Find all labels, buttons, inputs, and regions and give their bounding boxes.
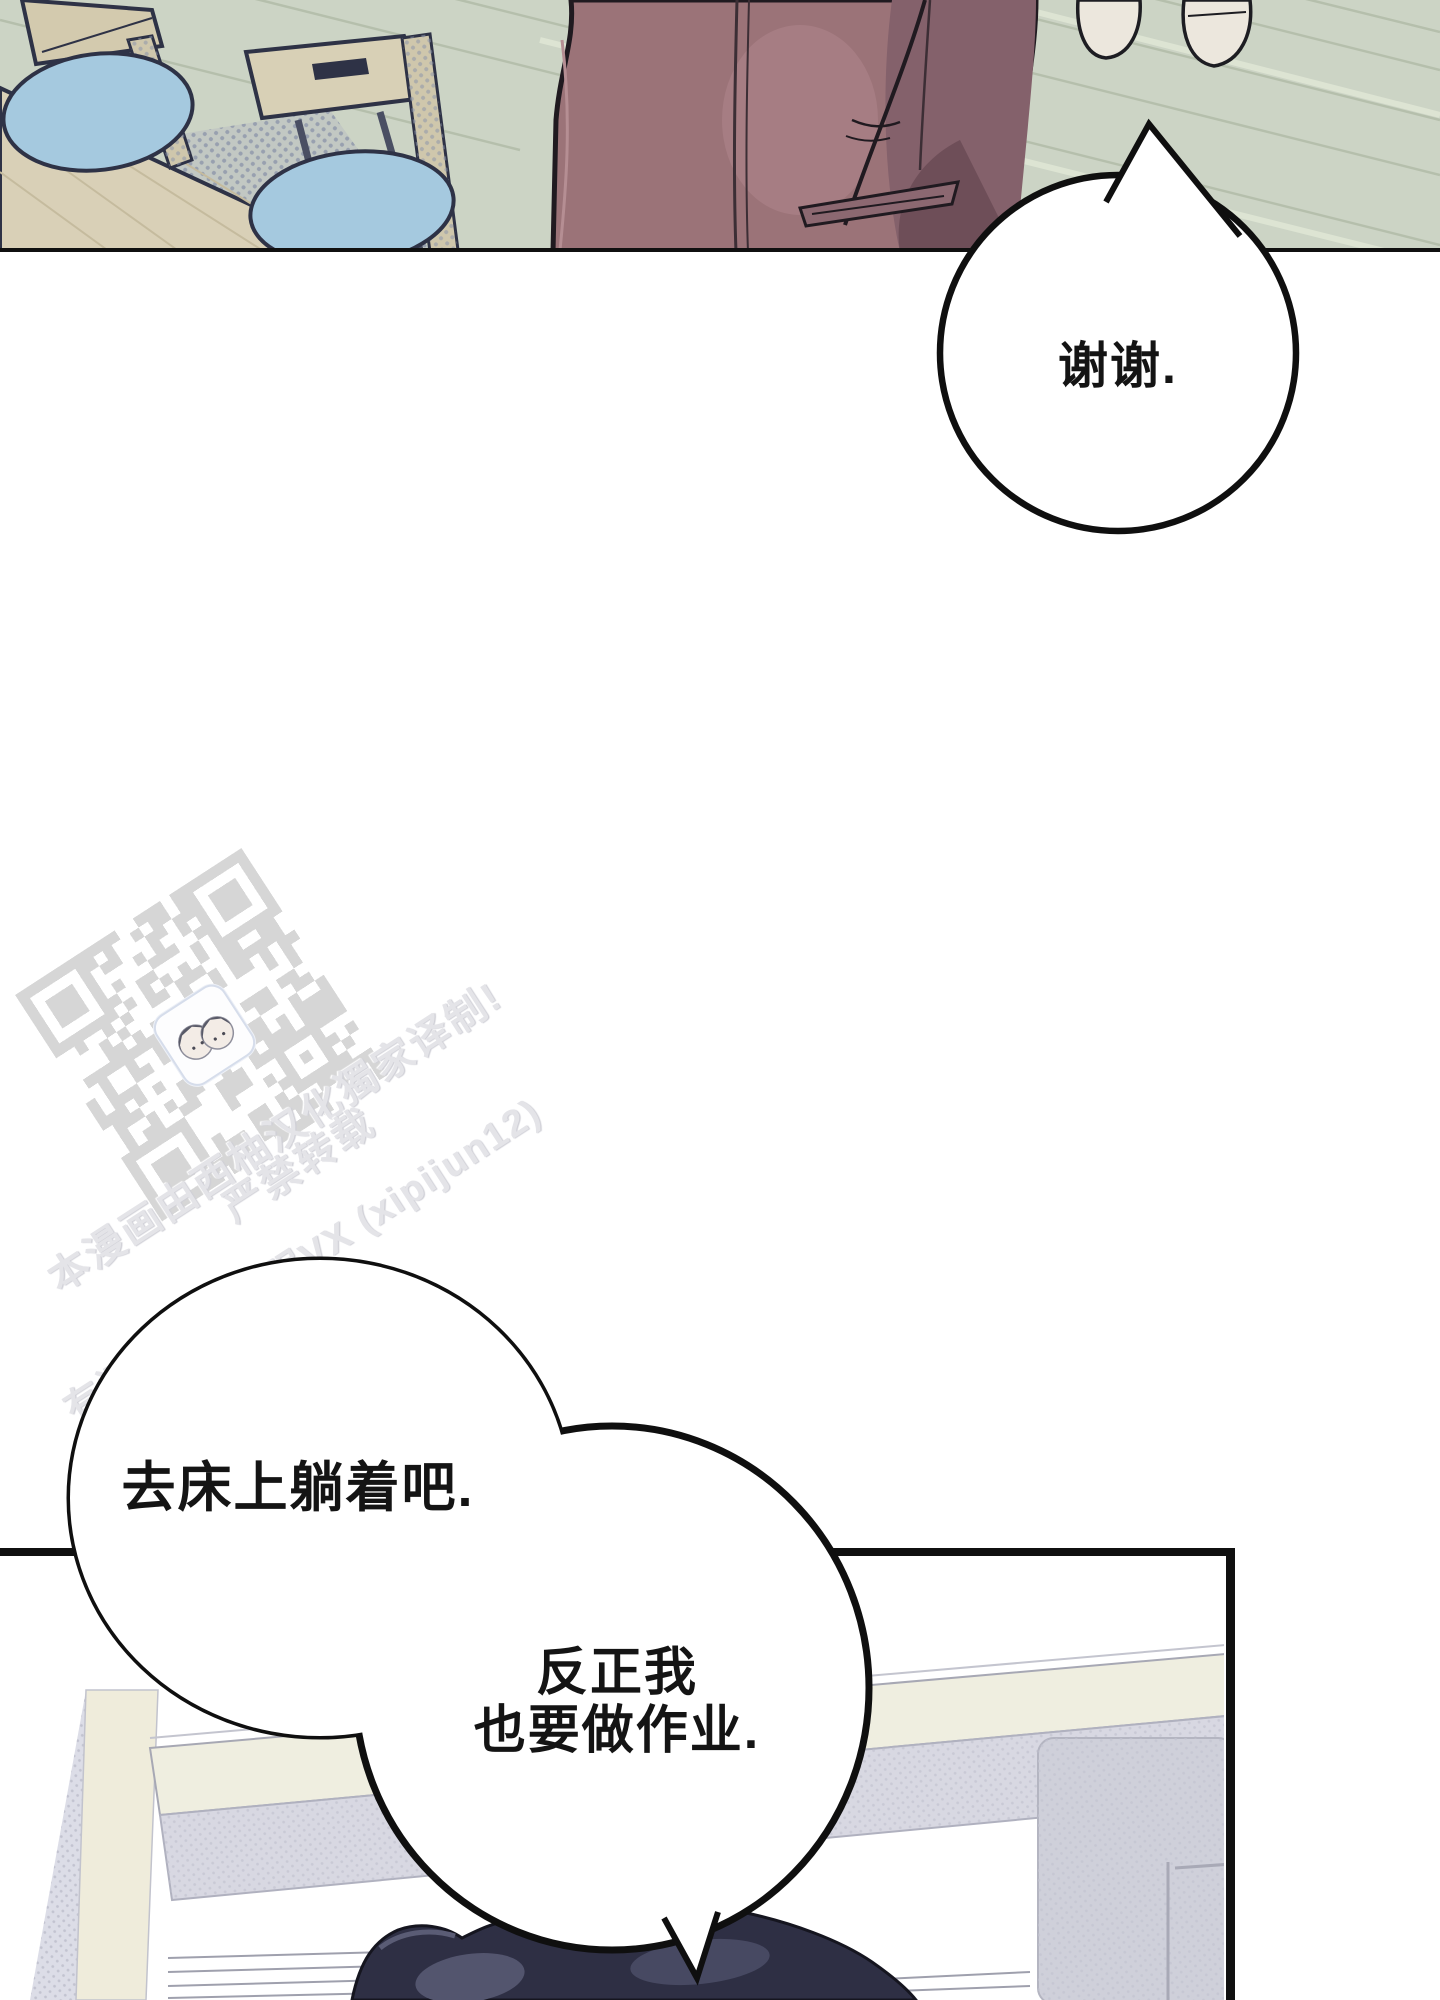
speech-bubble-joined	[70, 1260, 869, 1978]
comic-page: { "page": { "width": 1440, "height": 200…	[0, 0, 1440, 2000]
bubble-text-bed: 去床上躺着吧.	[98, 1458, 498, 1518]
speech-bubble-thanks	[940, 124, 1296, 531]
bubble-text-homework-line2: 也要做作业.	[417, 1702, 817, 1760]
bubble-text-homework: 反正我 也要做作业.	[417, 1644, 817, 1760]
bubble-text-thanks: 谢谢.	[998, 336, 1238, 396]
bubble-text-homework-line1: 反正我	[417, 1644, 817, 1702]
